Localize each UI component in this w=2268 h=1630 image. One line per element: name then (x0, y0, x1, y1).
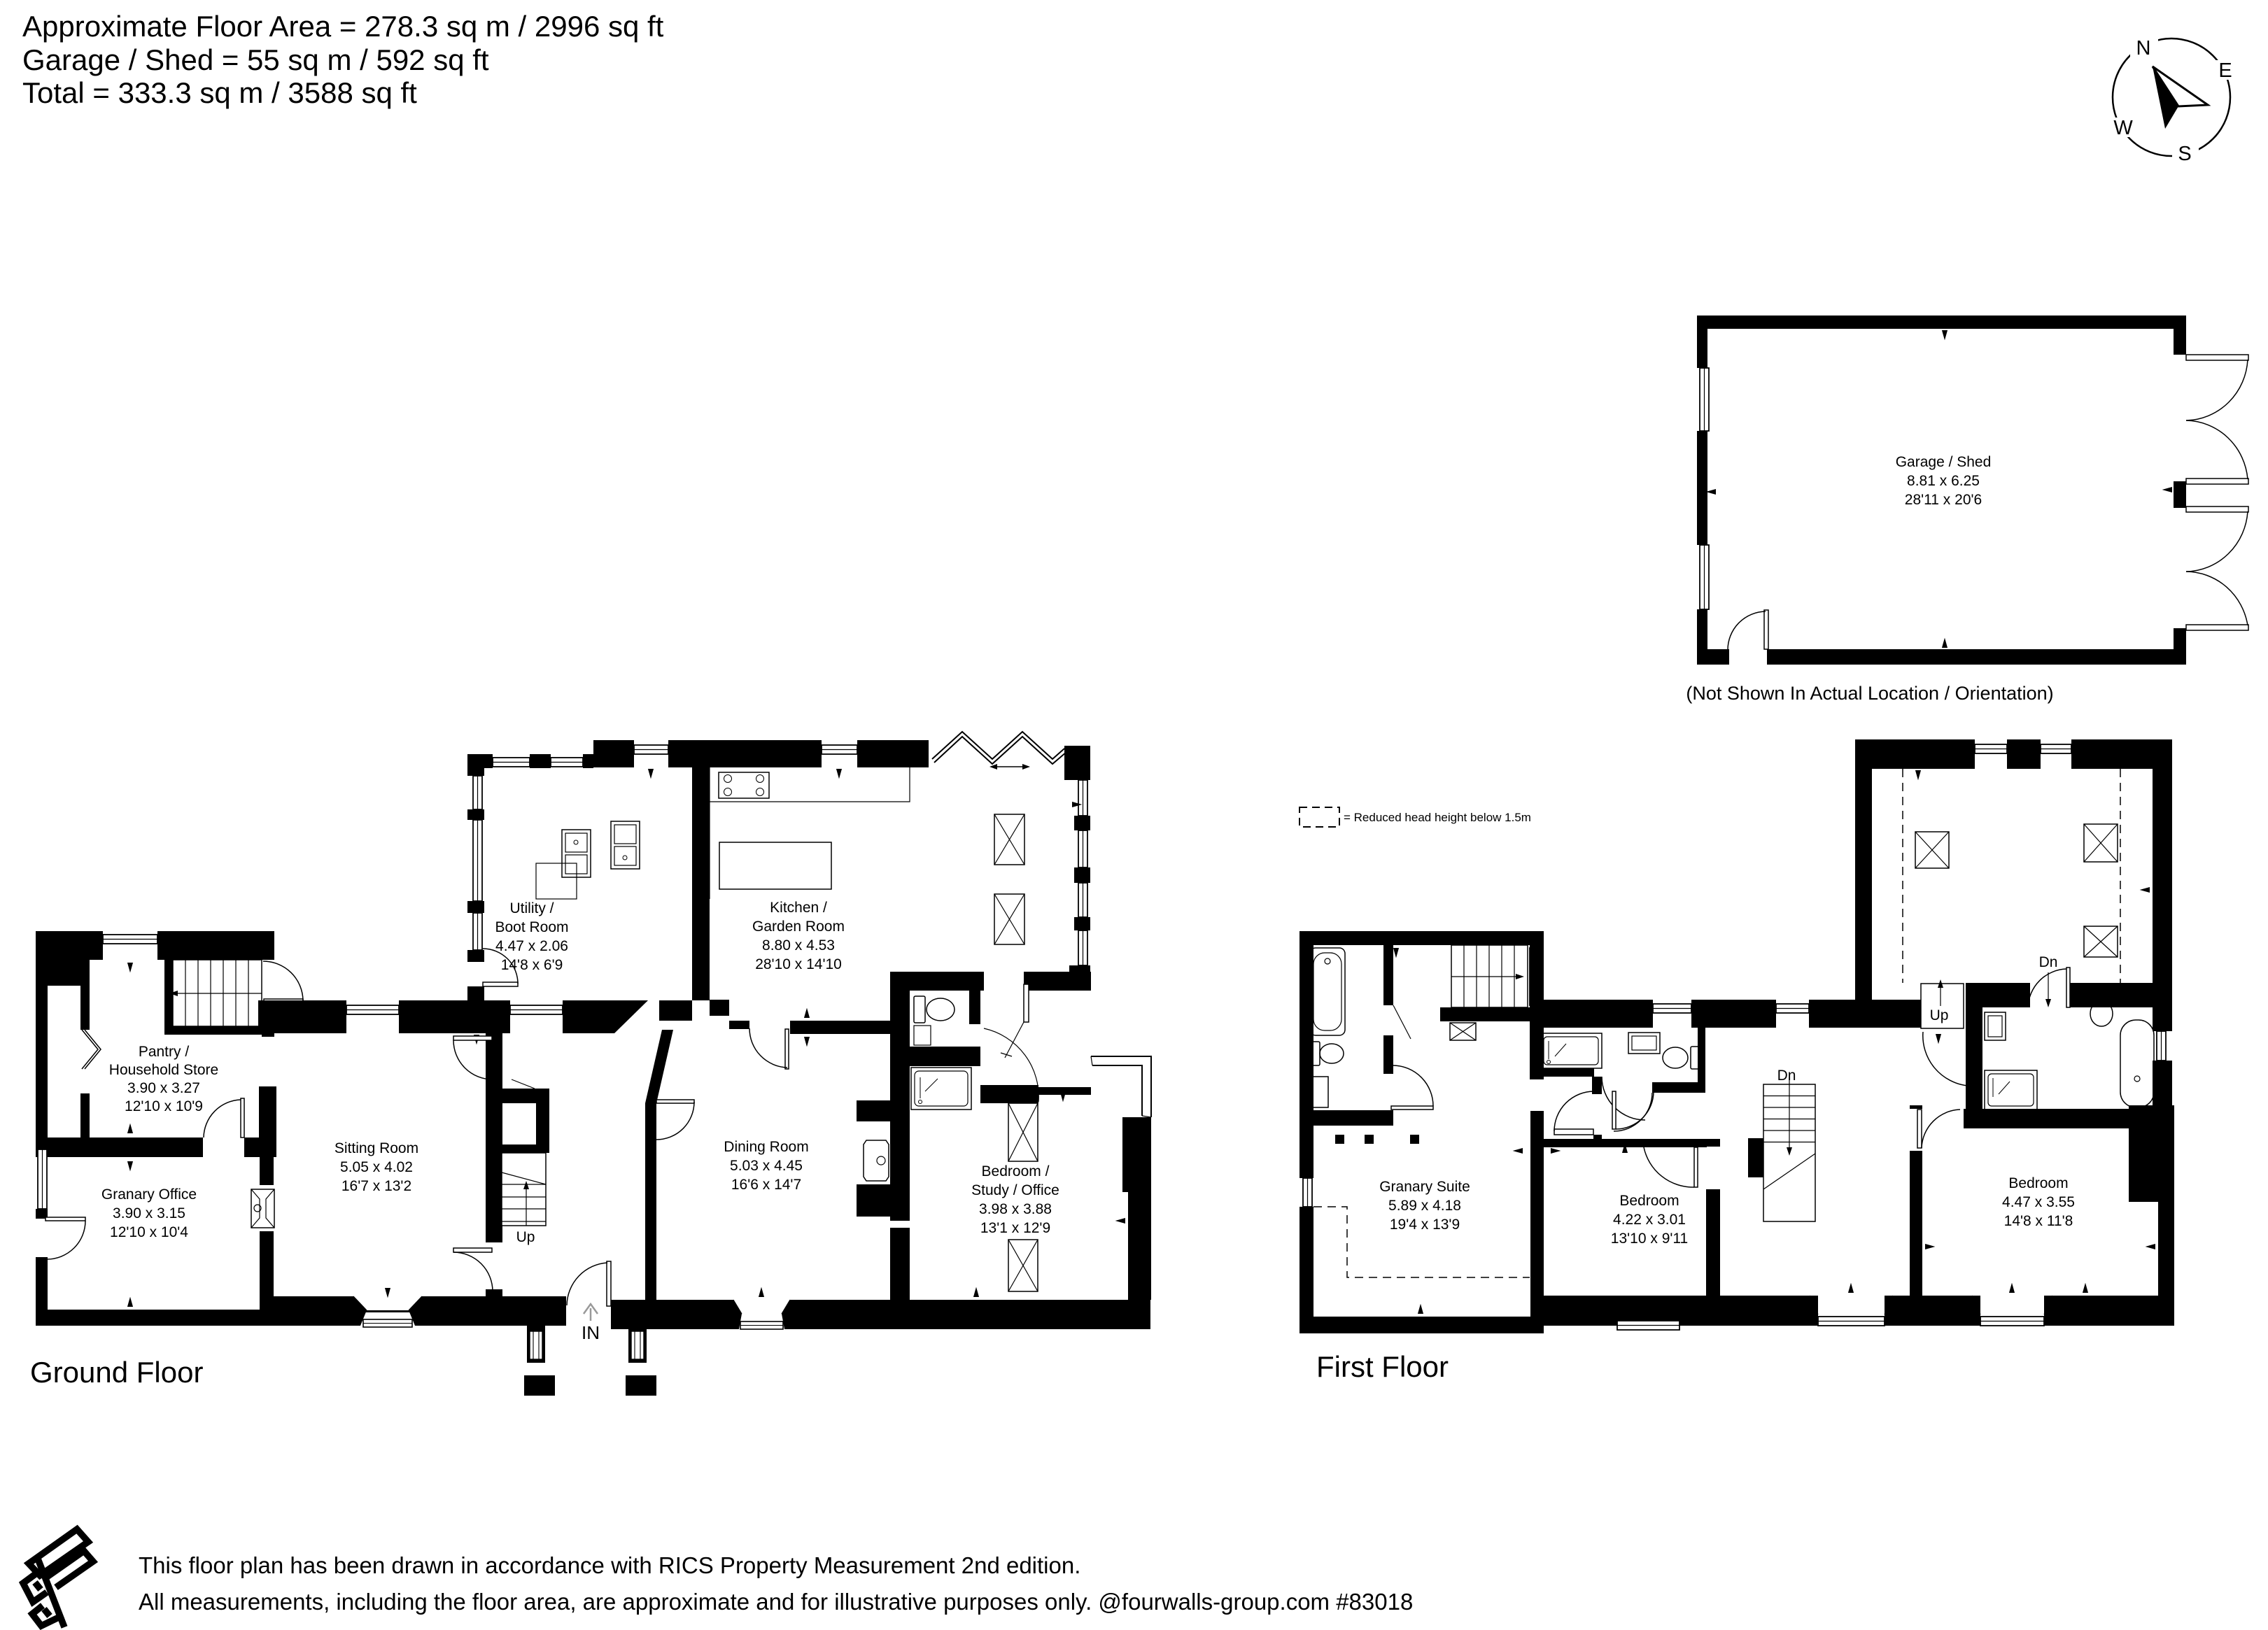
svg-text:W: W (2113, 117, 2133, 139)
svg-text:19'4 x 13'9: 19'4 x 13'9 (1390, 1217, 1460, 1233)
svg-text:Pantry /: Pantry / (139, 1044, 190, 1060)
svg-text:Up: Up (1930, 1007, 1949, 1023)
svg-text:Up: Up (516, 1229, 535, 1245)
svg-text:Garage / Shed = 55 sq m / 592: Garage / Shed = 55 sq m / 592 sq ft (22, 43, 489, 76)
svg-text:Approximate Floor Area = 278.3: Approximate Floor Area = 278.3 sq m / 29… (22, 10, 664, 43)
svg-text:Sitting Room: Sitting Room (334, 1140, 418, 1156)
svg-text:Bedroom /: Bedroom / (982, 1163, 1050, 1179)
svg-text:3.90 x 3.15: 3.90 x 3.15 (113, 1205, 185, 1221)
svg-text:Utility /: Utility / (510, 900, 554, 916)
svg-text:Ground Floor: Ground Floor (30, 1356, 203, 1389)
svg-text:= Reduced head height below 1.: = Reduced head height below 1.5m (1344, 811, 1531, 824)
svg-text:Study / Office: Study / Office (971, 1182, 1059, 1198)
svg-text:Dn: Dn (2039, 954, 2058, 970)
svg-text:E: E (2218, 59, 2232, 82)
svg-text:Household Store: Household Store (109, 1062, 218, 1078)
svg-text:(Not Shown In Actual Location: (Not Shown In Actual Location / Orientat… (1686, 683, 2053, 704)
svg-text:16'7 x 13'2: 16'7 x 13'2 (341, 1178, 411, 1194)
svg-text:14'8 x 6'9: 14'8 x 6'9 (501, 957, 563, 973)
svg-text:This floor plan has been drawn: This floor plan has been drawn in accord… (139, 1552, 1080, 1578)
svg-text:5.89 x 4.18: 5.89 x 4.18 (1388, 1198, 1461, 1214)
svg-text:4.22 x 3.01: 4.22 x 3.01 (1613, 1212, 1686, 1228)
svg-text:4.47 x 3.55: 4.47 x 3.55 (2002, 1194, 2075, 1210)
svg-text:Bedroom: Bedroom (2008, 1175, 2068, 1191)
svg-text:Granary Suite: Granary Suite (1379, 1179, 1470, 1195)
svg-text:Bedroom: Bedroom (1619, 1193, 1679, 1209)
svg-text:Dining Room: Dining Room (724, 1139, 808, 1155)
svg-text:28'11 x 20'6: 28'11 x 20'6 (1905, 492, 1982, 508)
svg-text:Boot Room: Boot Room (495, 919, 568, 935)
svg-text:Granary Office: Granary Office (101, 1186, 197, 1203)
svg-text:3.98 x 3.88: 3.98 x 3.88 (979, 1201, 1052, 1217)
svg-text:5.03 x 4.45: 5.03 x 4.45 (730, 1158, 803, 1174)
svg-text:8.81 x 6.25: 8.81 x 6.25 (1907, 473, 1980, 489)
svg-text:8.80 x 4.53: 8.80 x 4.53 (762, 937, 835, 954)
svg-text:All measurements, including th: All measurements, including the floor ar… (139, 1589, 1413, 1615)
svg-text:12'10 x 10'4: 12'10 x 10'4 (110, 1224, 188, 1240)
svg-text:Kitchen /: Kitchen / (770, 900, 827, 916)
svg-text:4.47 x 2.06: 4.47 x 2.06 (495, 938, 568, 954)
svg-text:13'10 x 9'11: 13'10 x 9'11 (1611, 1231, 1688, 1247)
svg-text:N: N (2136, 37, 2151, 59)
svg-text:16'6 x 14'7: 16'6 x 14'7 (731, 1177, 801, 1193)
svg-text:S: S (2178, 143, 2191, 165)
svg-text:Dn: Dn (1777, 1068, 1796, 1084)
svg-text:First Floor: First Floor (1316, 1350, 1449, 1383)
svg-text:13'1 x 12'9: 13'1 x 12'9 (980, 1220, 1050, 1236)
svg-text:Total = 333.3 sq m / 3588 sq f: Total = 333.3 sq m / 3588 sq ft (22, 76, 417, 109)
svg-text:5.05 x 4.02: 5.05 x 4.02 (340, 1159, 413, 1175)
svg-text:IN: IN (582, 1322, 600, 1343)
svg-text:Garden Room: Garden Room (752, 919, 845, 935)
svg-text:28'10 x 14'10: 28'10 x 14'10 (755, 956, 842, 972)
svg-text:Garage / Shed: Garage / Shed (1896, 454, 1992, 470)
svg-text:3.90 x 3.27: 3.90 x 3.27 (127, 1080, 200, 1096)
svg-text:14'8 x 11'8: 14'8 x 11'8 (2004, 1213, 2073, 1229)
svg-text:12'10 x 10'9: 12'10 x 10'9 (125, 1098, 203, 1114)
